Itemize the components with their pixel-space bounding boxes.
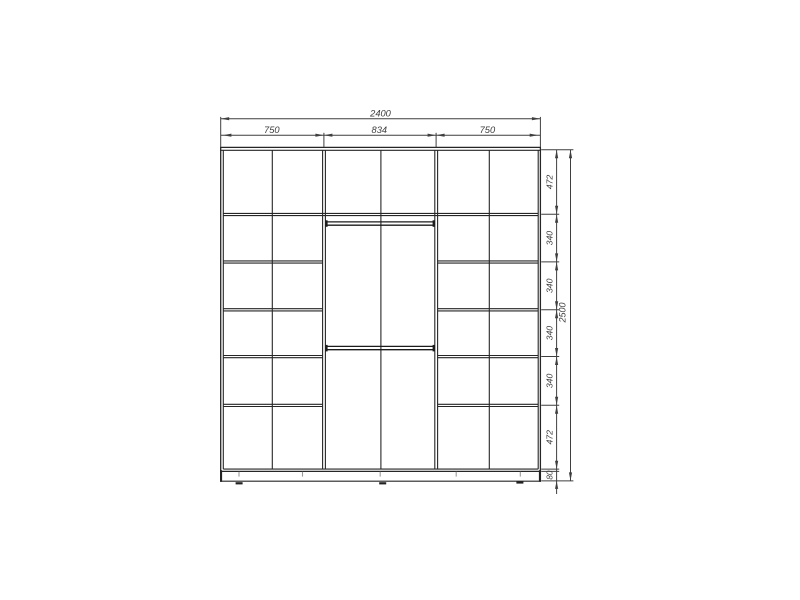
svg-text:472: 472 [544, 175, 554, 190]
svg-text:2500: 2500 [557, 302, 567, 323]
svg-text:750: 750 [480, 125, 496, 135]
svg-text:340: 340 [544, 373, 554, 388]
svg-text:834: 834 [372, 125, 388, 135]
svg-text:2400: 2400 [369, 108, 392, 118]
svg-text:80: 80 [545, 470, 554, 480]
svg-text:750: 750 [264, 125, 280, 135]
svg-text:472: 472 [544, 430, 554, 445]
svg-text:340: 340 [544, 278, 554, 293]
svg-text:340: 340 [544, 231, 554, 246]
svg-text:340: 340 [544, 326, 554, 341]
